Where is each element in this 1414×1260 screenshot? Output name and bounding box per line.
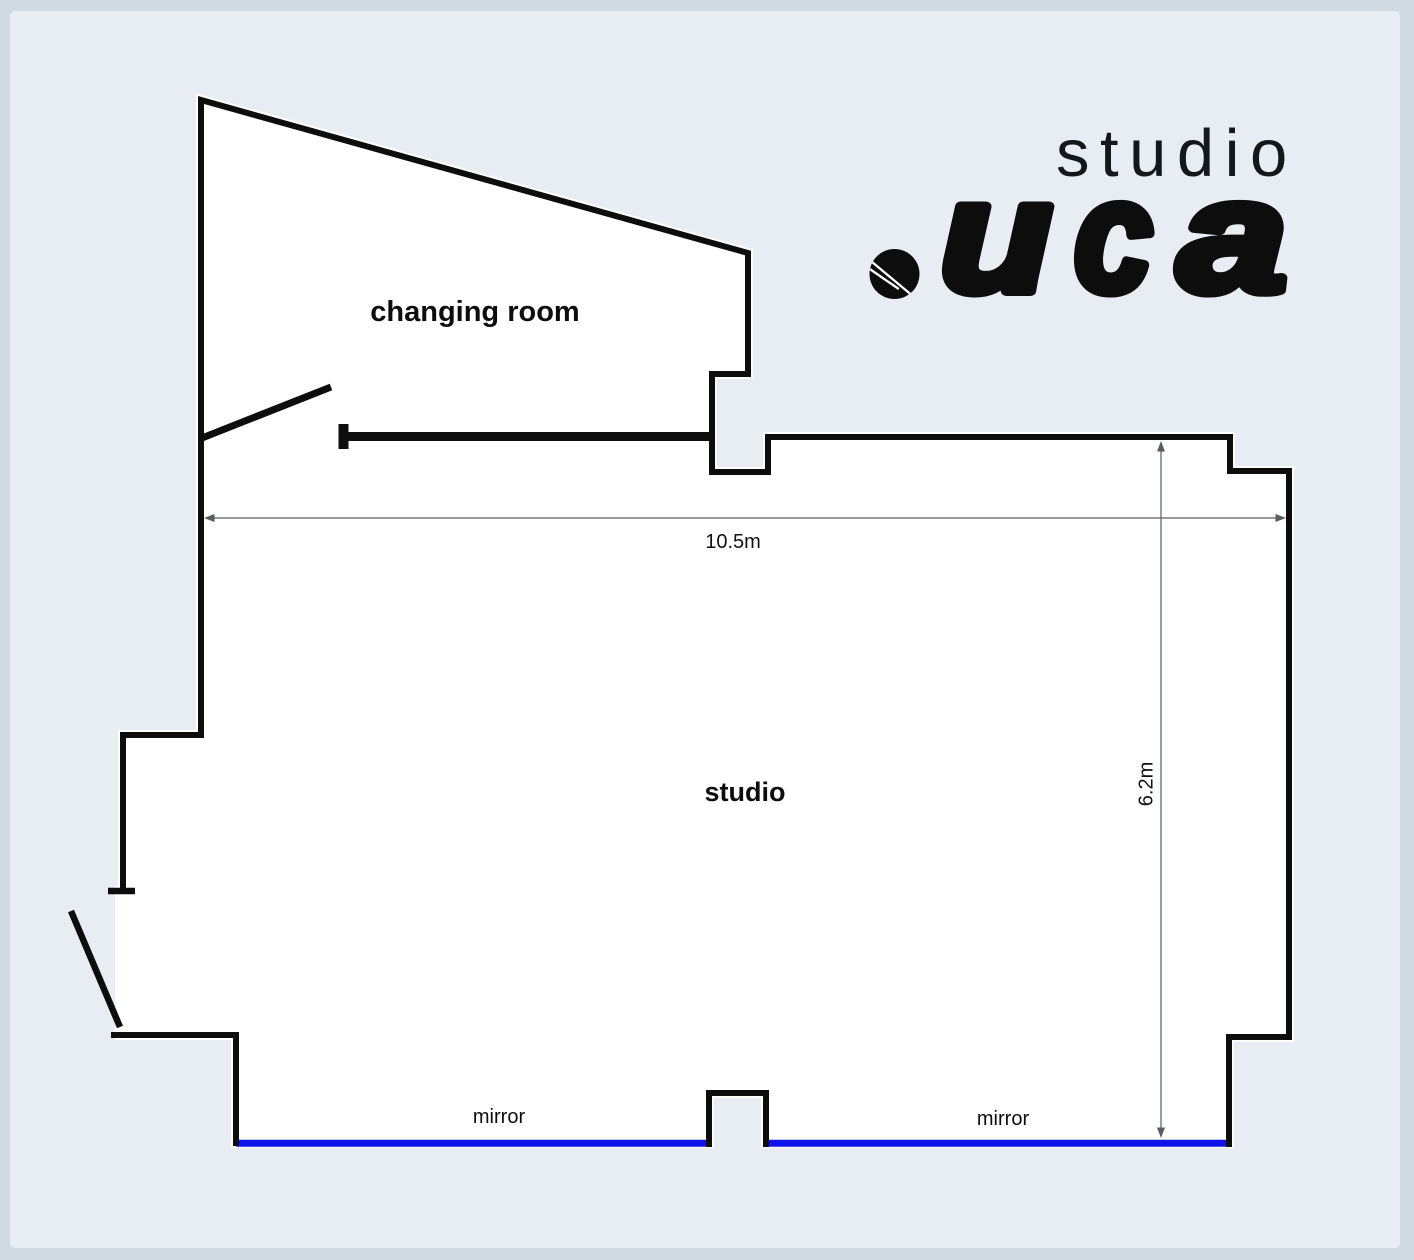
svg-text:u: u — [940, 147, 1052, 326]
svg-text:c: c — [1074, 147, 1152, 325]
svg-text:a: a — [1178, 146, 1287, 325]
svg-text:changing room: changing room — [370, 296, 579, 328]
svg-text:10.5m: 10.5m — [705, 531, 761, 553]
svg-text:studio: studio — [705, 777, 786, 807]
svg-text:6.2m: 6.2m — [1136, 762, 1158, 806]
svg-text:mirror: mirror — [977, 1108, 1030, 1130]
svg-text:mirror: mirror — [473, 1106, 526, 1128]
